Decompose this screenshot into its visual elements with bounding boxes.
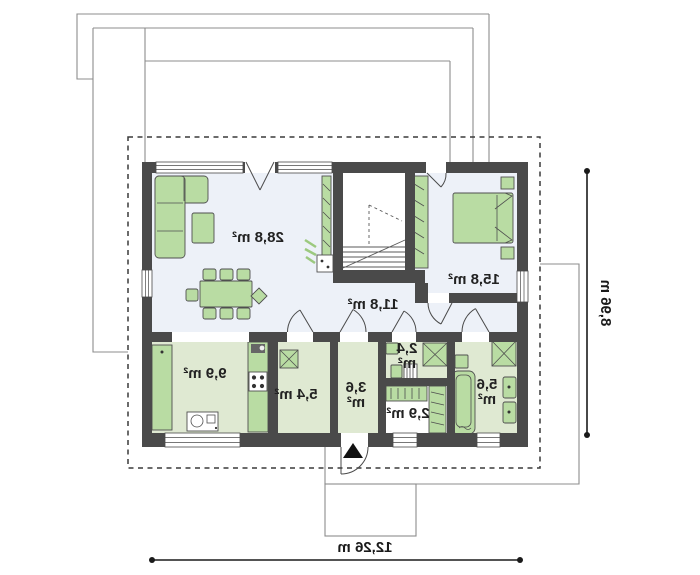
floor-plan-drawing: 28,8 m² 15,8 m² 11,8 m² 9,9 m² 5,4 m² 3,…: [0, 0, 700, 575]
closet-label: 2,9 m²: [386, 405, 429, 422]
kitchen-window: [165, 433, 240, 447]
dimension-width-label: 12,26 m: [337, 539, 392, 556]
nightstand: [501, 247, 514, 259]
kitchen-label: 9,9 m²: [183, 365, 226, 382]
bathtub: [452, 371, 475, 434]
bath-sink: [455, 355, 468, 368]
dimension-depth-label: 8,96 m: [597, 280, 614, 327]
kitchen-opening: [172, 332, 249, 342]
utility-label: 5,4 m²: [274, 386, 317, 403]
bath-shower: [492, 341, 516, 366]
dimension-depth: [584, 168, 590, 438]
entrance-door: [341, 443, 368, 474]
hall-label: 11,8 m²: [348, 296, 399, 313]
dimension-width: [149, 557, 523, 563]
coffee-table: [192, 213, 214, 243]
washing-machine: [280, 350, 298, 368]
living-room-label: 28,8 m²: [232, 229, 284, 246]
side-window-left: [142, 270, 152, 297]
wc-shower: [423, 343, 447, 366]
living-room-window-2: [278, 162, 332, 173]
closet-window: [393, 433, 417, 447]
floor-plan-page: 28,8 m² 15,8 m² 11,8 m² 9,9 m² 5,4 m² 3,…: [0, 0, 700, 575]
stairwell-floor: [343, 173, 405, 270]
vestibule-label-unit: m²: [347, 394, 365, 411]
nightstand: [501, 177, 514, 189]
wc-label-unit: m²: [398, 355, 416, 372]
shelf-strip: [322, 176, 331, 256]
side-window-right: [517, 271, 528, 302]
bathroom-window: [477, 433, 500, 447]
bathroom-label-unit: m²: [478, 391, 496, 408]
bedroom-label: 15,8 m²: [448, 271, 500, 288]
living-room-window: [156, 162, 243, 173]
cooktop: [249, 372, 267, 391]
